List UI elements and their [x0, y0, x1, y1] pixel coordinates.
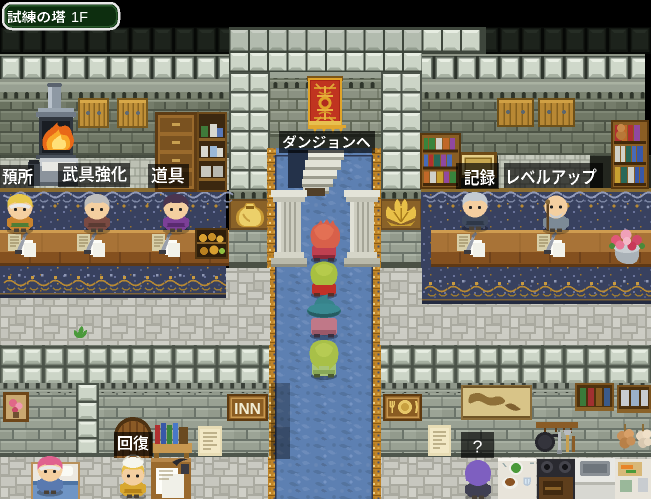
- svg-text:?: ?: [473, 437, 483, 457]
- svg-text:1F: 1F: [71, 10, 88, 26]
- svg-text:INN: INN: [234, 401, 261, 418]
